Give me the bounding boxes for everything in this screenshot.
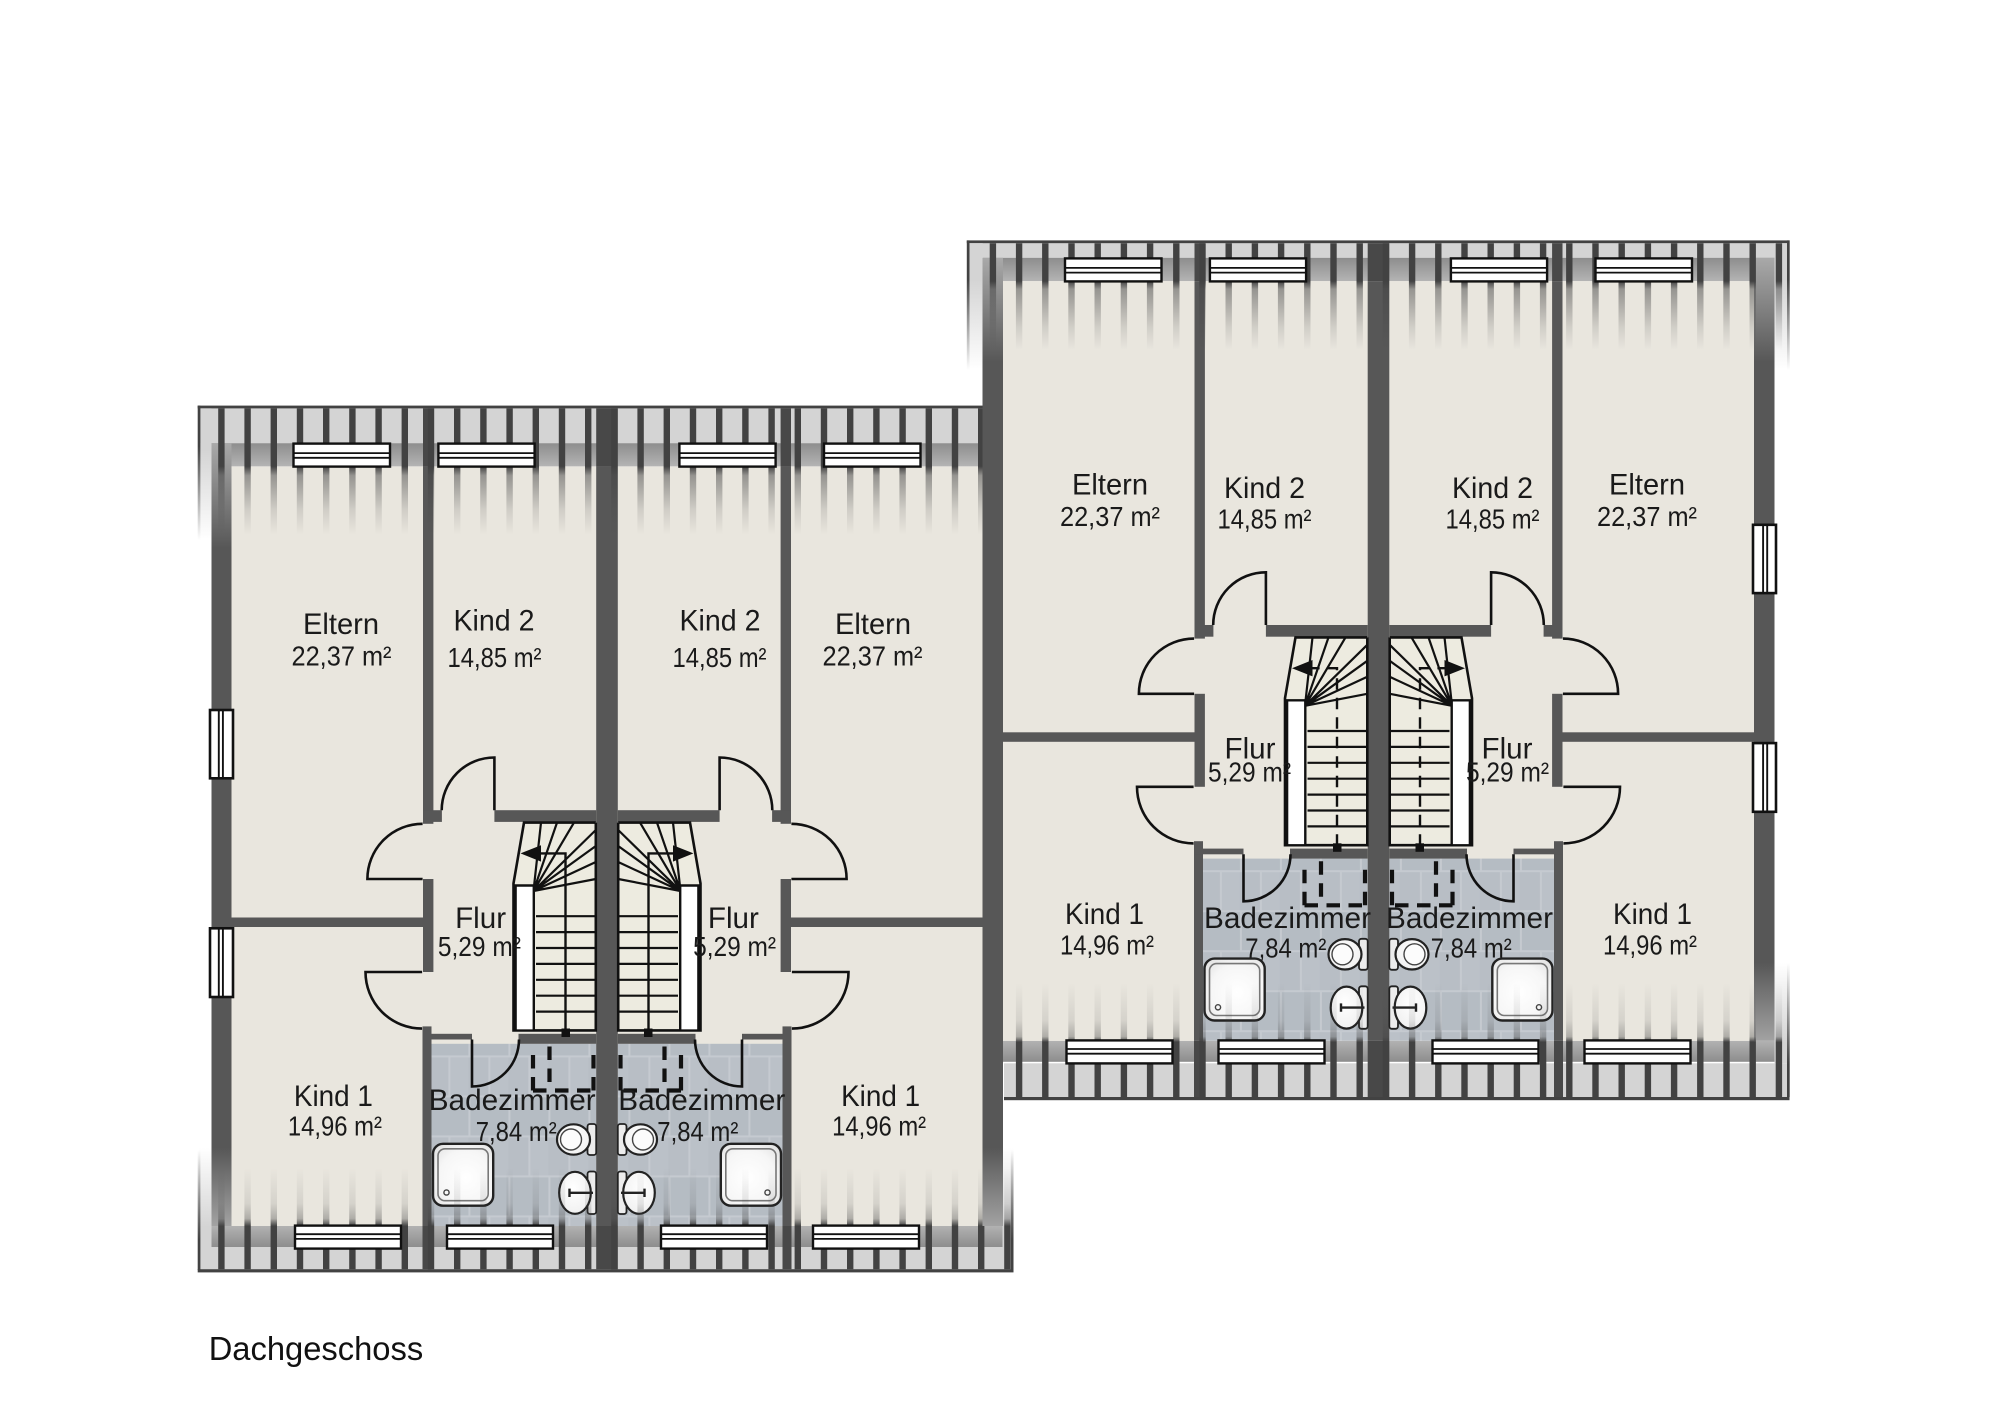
svg-text:Kind 2: Kind 2 [1452, 472, 1533, 505]
svg-text:Badezimmer: Badezimmer [618, 1084, 785, 1117]
svg-text:Badezimmer: Badezimmer [1204, 902, 1371, 935]
svg-text:7,84 m²: 7,84 m² [1431, 933, 1512, 964]
svg-text:14,96 m²: 14,96 m² [288, 1111, 382, 1142]
svg-text:14,85 m²: 14,85 m² [448, 642, 542, 673]
svg-text:Eltern: Eltern [835, 608, 911, 641]
svg-text:Badezimmer: Badezimmer [1386, 902, 1553, 935]
svg-text:7,84 m²: 7,84 m² [1245, 933, 1326, 964]
svg-text:7,84 m²: 7,84 m² [657, 1116, 738, 1147]
svg-text:Kind 1: Kind 1 [1613, 898, 1692, 931]
svg-text:5,29 m²: 5,29 m² [1208, 757, 1291, 788]
svg-text:14,85 m²: 14,85 m² [1218, 504, 1312, 535]
svg-text:22,37 m²: 22,37 m² [1597, 501, 1697, 532]
svg-text:5,29 m²: 5,29 m² [1466, 757, 1549, 788]
svg-text:Eltern: Eltern [1072, 469, 1148, 502]
svg-text:Kind 2: Kind 2 [680, 605, 761, 638]
svg-text:14,96 m²: 14,96 m² [1603, 929, 1697, 960]
svg-text:Eltern: Eltern [303, 608, 379, 641]
svg-text:Dachgeschoss: Dachgeschoss [209, 1330, 424, 1367]
svg-text:Kind 1: Kind 1 [841, 1080, 920, 1113]
svg-text:Eltern: Eltern [1609, 469, 1685, 502]
svg-text:Kind 1: Kind 1 [294, 1080, 373, 1113]
svg-text:Kind 1: Kind 1 [1065, 898, 1144, 931]
svg-text:Flur: Flur [708, 902, 759, 935]
svg-text:14,96 m²: 14,96 m² [1060, 929, 1154, 960]
svg-text:7,84 m²: 7,84 m² [476, 1116, 557, 1147]
svg-text:Kind 2: Kind 2 [454, 605, 535, 638]
svg-text:22,37 m²: 22,37 m² [1060, 501, 1160, 532]
svg-text:Kind 2: Kind 2 [1224, 472, 1305, 505]
svg-text:Flur: Flur [455, 902, 506, 935]
svg-text:14,85 m²: 14,85 m² [1446, 504, 1540, 535]
svg-text:14,96 m²: 14,96 m² [832, 1111, 926, 1142]
svg-text:22,37 m²: 22,37 m² [823, 641, 923, 672]
svg-text:5,29 m²: 5,29 m² [438, 931, 521, 962]
svg-text:22,37 m²: 22,37 m² [292, 641, 392, 672]
svg-text:14,85 m²: 14,85 m² [673, 642, 767, 673]
svg-text:5,29 m²: 5,29 m² [693, 931, 776, 962]
svg-text:Badezimmer: Badezimmer [429, 1084, 596, 1117]
